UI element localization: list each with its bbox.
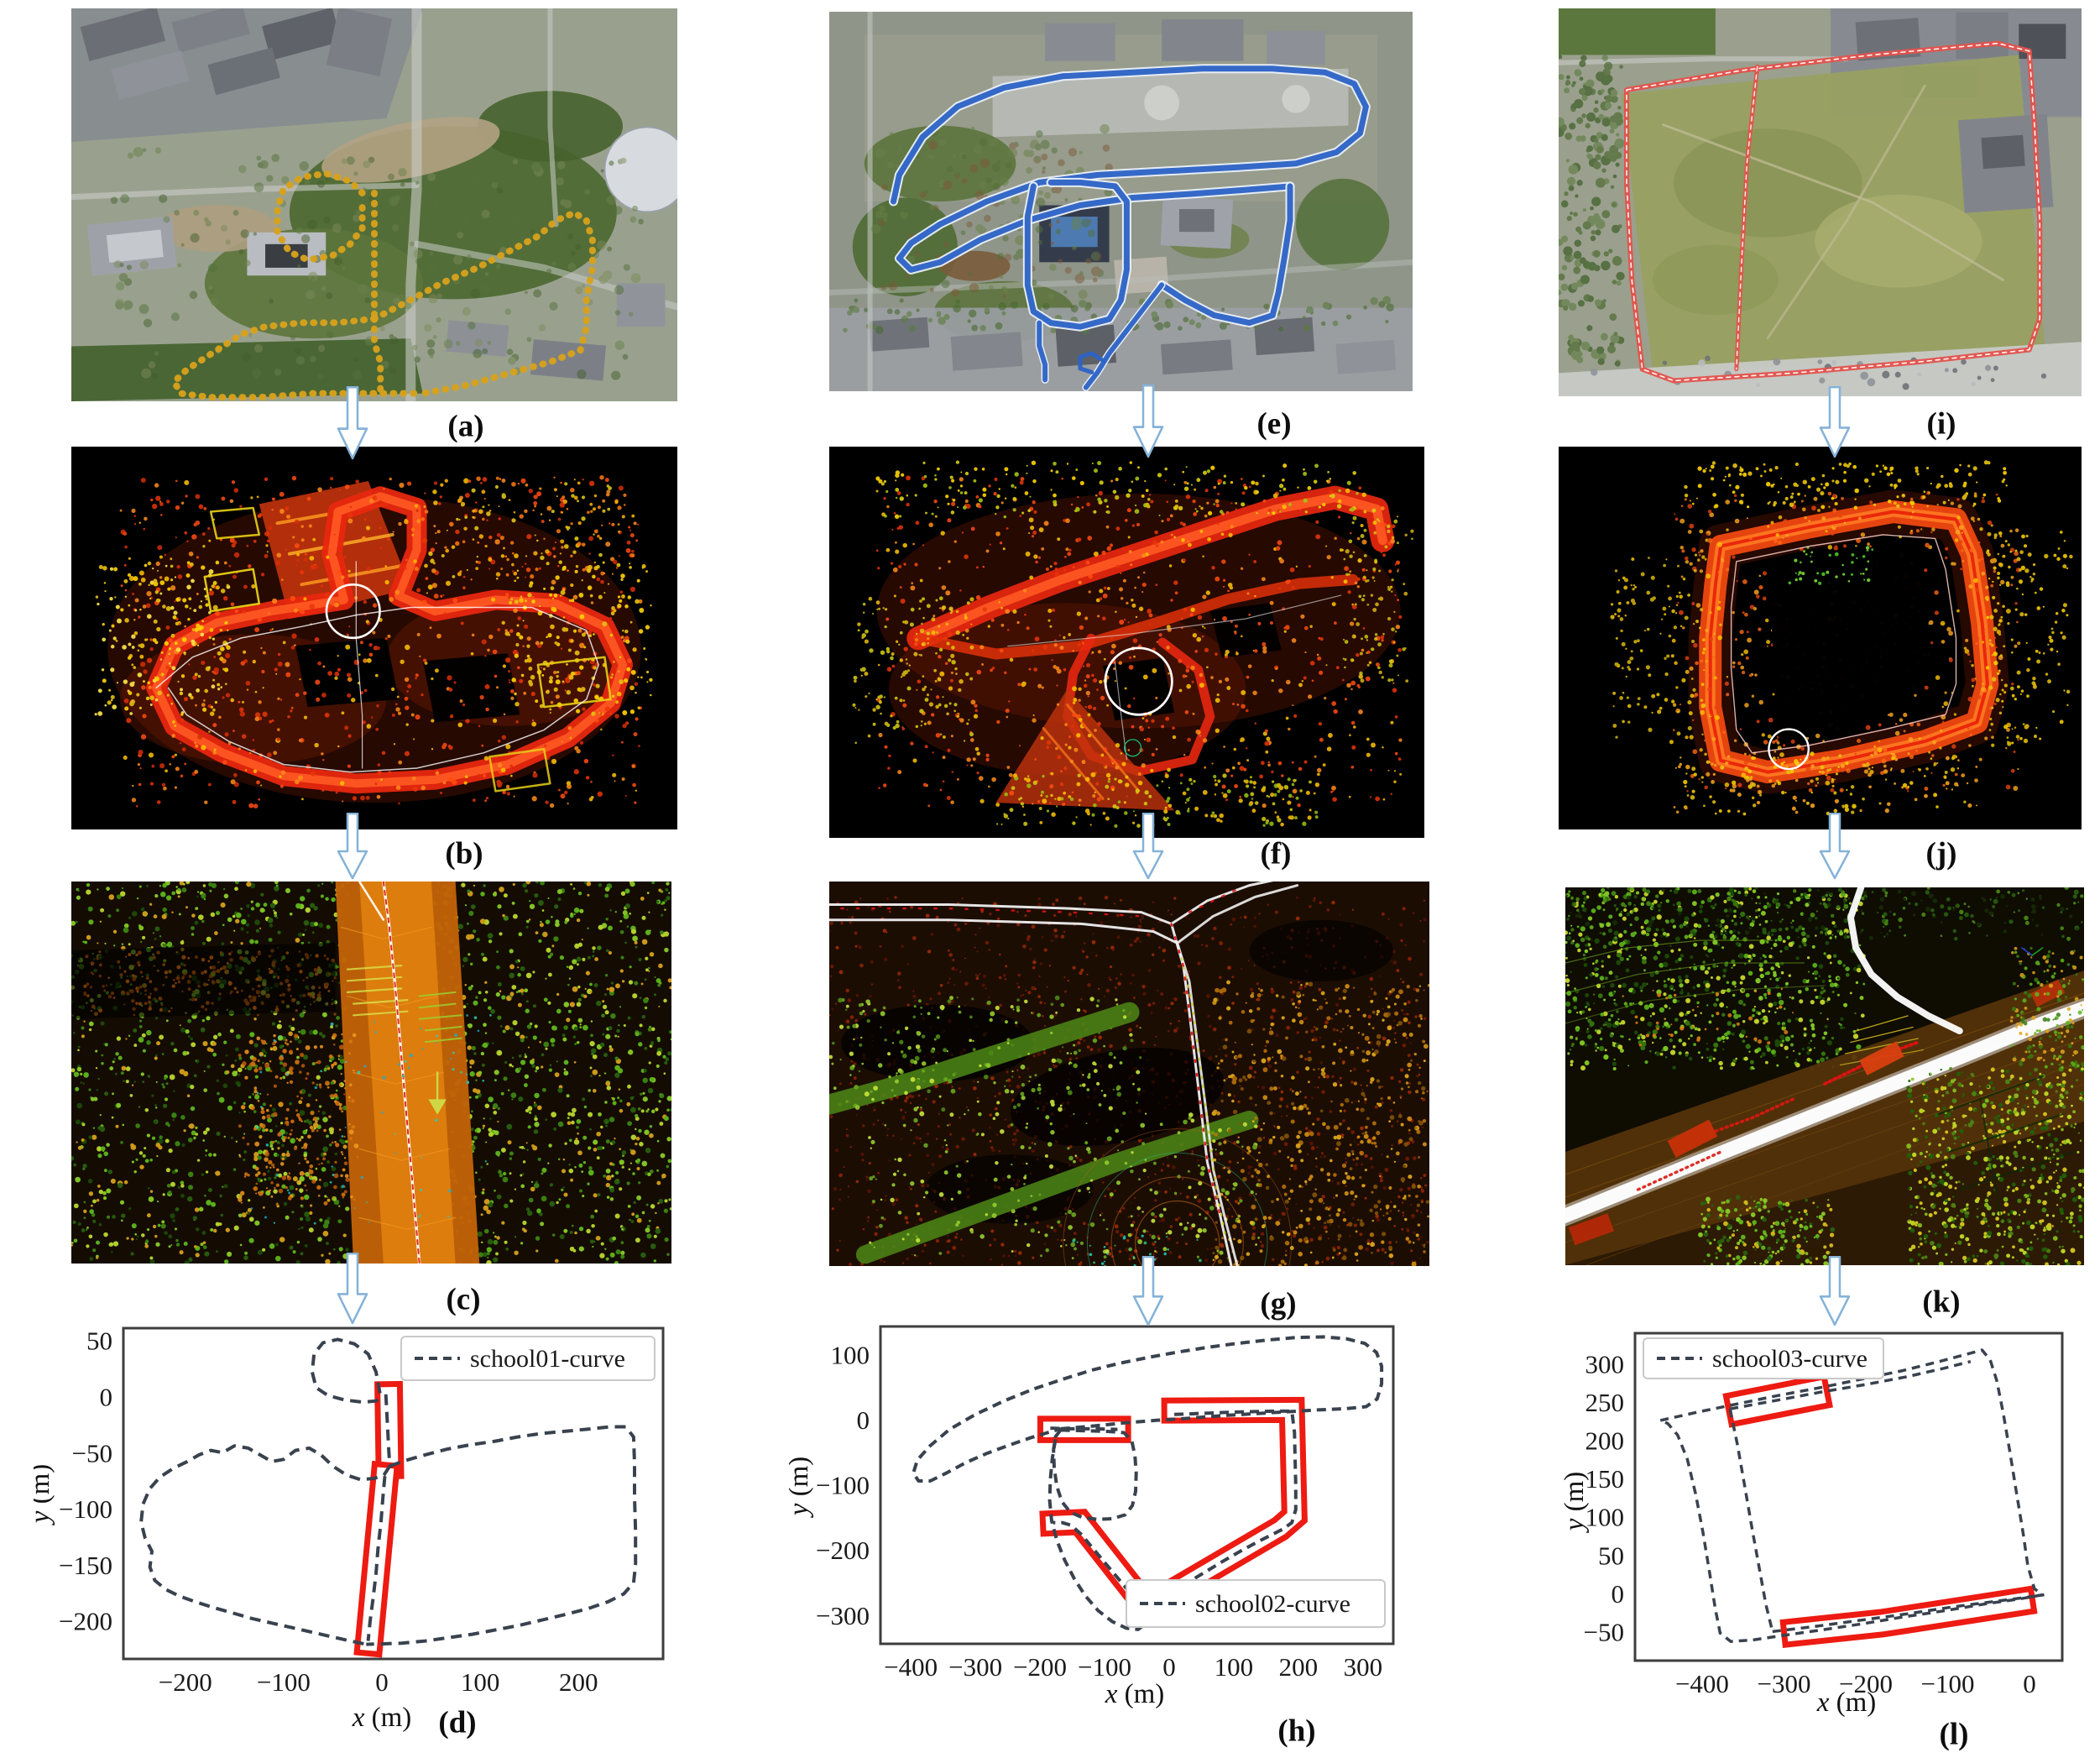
caption-g: (g) (1260, 1286, 1296, 1322)
caption-b: (b) (445, 836, 483, 872)
caption-k: (k) (1922, 1284, 1960, 1321)
pointcloud-map-j (1559, 447, 2082, 829)
satellite-map-e (829, 12, 1413, 391)
caption-a: (a) (447, 409, 483, 445)
caption-j: (j) (1926, 836, 1957, 872)
x-axis-label: x (m) (352, 1703, 412, 1733)
legend-label: school02-curve (1195, 1590, 1350, 1618)
lidar-map-f (829, 447, 1424, 838)
caption-l: (l) (1940, 1717, 1969, 1753)
caption-f: (f) (1261, 836, 1292, 872)
legend-label: school03-curve (1712, 1345, 1868, 1373)
down-arrow-icon (331, 813, 374, 884)
legend-label: school01-curve (470, 1345, 625, 1373)
down-arrow-icon (1126, 813, 1170, 884)
caption-i: (i) (1927, 406, 1956, 442)
down-arrow-icon (1813, 386, 1857, 463)
satellite-image-a (71, 8, 677, 401)
y-axis-label: y (m) (789, 1457, 814, 1519)
satellite-image-e (829, 12, 1413, 391)
lidar-map-b (71, 447, 677, 829)
y-axis-label: y (m) (34, 1464, 55, 1526)
down-arrow-icon (1813, 813, 1857, 884)
pointcloud-closeup-g (829, 882, 1429, 1266)
pointcloud-map-b (71, 447, 677, 829)
down-arrow-icon (331, 386, 374, 464)
pointcloud-closeup-k (1565, 887, 2084, 1265)
pointcloud-closeup-c (71, 882, 671, 1264)
lidar-closeup-c (71, 882, 671, 1264)
down-arrow-icon (1126, 1256, 1170, 1331)
trajectory-chart-school01: −200−1000100200500−50−100−150−200x (m)y … (34, 1320, 705, 1758)
pointcloud-map-f (829, 447, 1424, 838)
satellite-map-a (71, 8, 677, 401)
lidar-closeup-g (829, 882, 1429, 1266)
caption-d: (d) (438, 1705, 476, 1741)
satellite-map-i (1559, 8, 2082, 396)
down-arrow-icon (331, 1253, 374, 1329)
x-axis-label: x (m) (1105, 1679, 1165, 1709)
caption-e: (e) (1256, 406, 1291, 442)
legend: school01-curve (401, 1337, 655, 1380)
figure-page: −200−1000100200500−50−100−150−200x (m)y … (0, 0, 2100, 1758)
y-axis-label: y (m) (1559, 1472, 1590, 1534)
legend: school02-curve (1126, 1580, 1385, 1627)
trajectory-chart-school02: −400−300−200−10001002003001000−100−200−3… (789, 1318, 1429, 1758)
lidar-closeup-k (1565, 887, 2084, 1265)
caption-c: (c) (446, 1282, 480, 1318)
lidar-map-j (1559, 447, 2082, 829)
down-arrow-icon (1813, 1256, 1857, 1331)
down-arrow-icon (1126, 385, 1170, 463)
legend: school03-curve (1643, 1338, 1883, 1379)
satellite-image-i (1559, 8, 2082, 396)
x-axis-label: x (m) (1816, 1687, 1877, 1718)
trajectory-chart-school03: −400−300−200−1000300250200150100500−50x … (1553, 1325, 2100, 1758)
caption-h: (h) (1277, 1714, 1315, 1750)
